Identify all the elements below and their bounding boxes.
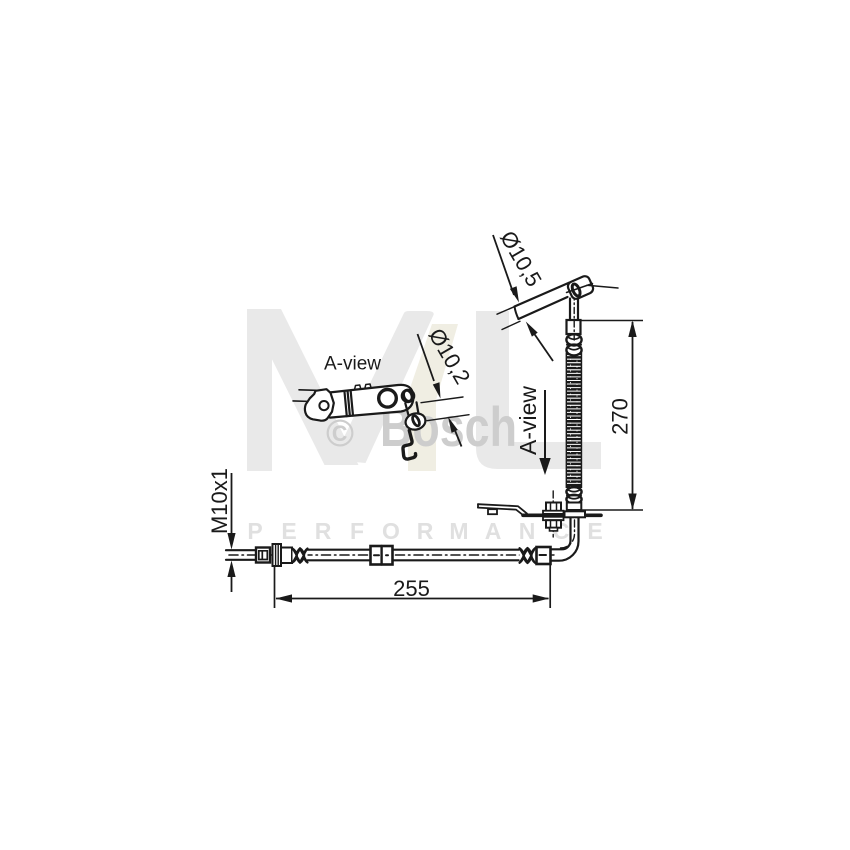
svg-text:270: 270: [608, 398, 633, 435]
svg-text:A: A: [485, 518, 502, 544]
svg-text:O: O: [382, 518, 400, 544]
svg-text:M: M: [449, 518, 468, 544]
svg-text:255: 255: [393, 576, 430, 601]
svg-text:A-view: A-view: [324, 354, 381, 375]
svg-text:N: N: [519, 518, 536, 544]
svg-text:F: F: [350, 518, 364, 544]
svg-text:M10x1: M10x1: [207, 468, 232, 534]
svg-text:E: E: [281, 518, 296, 544]
svg-text:R: R: [417, 518, 434, 544]
svg-text:A-view: A-view: [515, 386, 541, 455]
svg-text:P: P: [247, 518, 262, 544]
svg-text:R: R: [315, 518, 332, 544]
svg-text:E: E: [587, 518, 602, 544]
svg-text:©: ©: [326, 413, 354, 455]
